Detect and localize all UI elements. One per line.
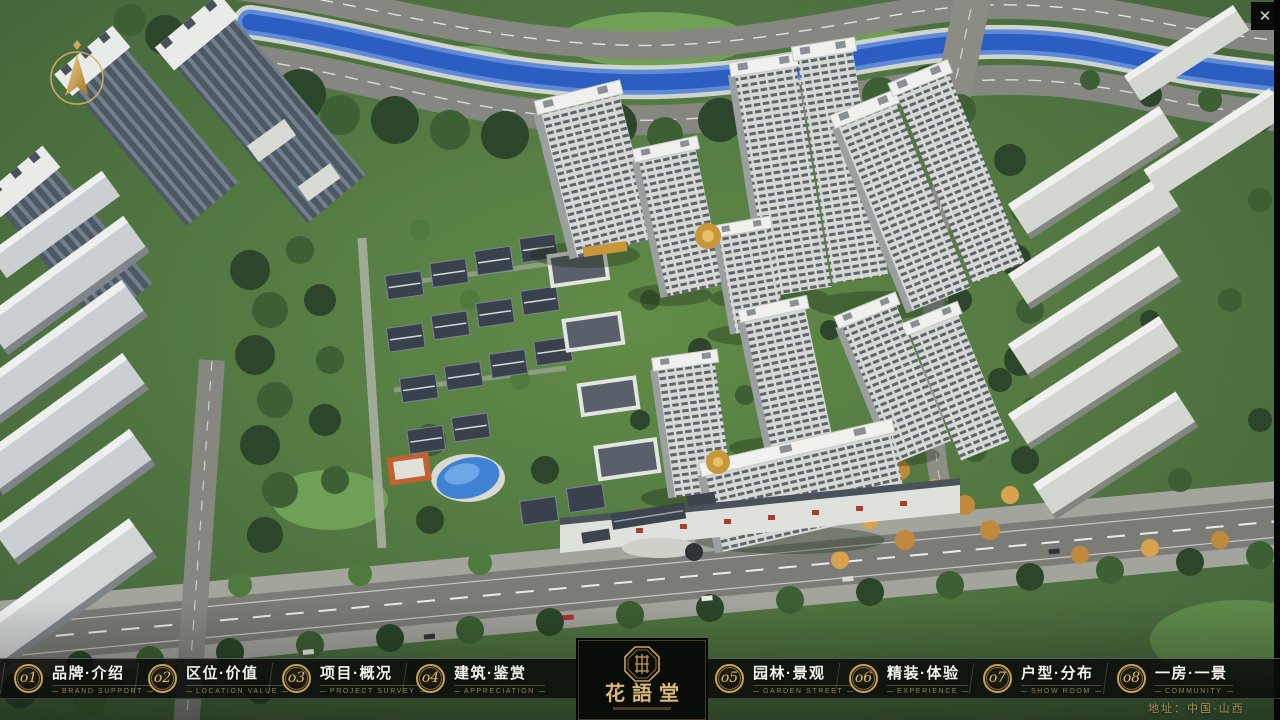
nav-label-en: COMMUNITY xyxy=(1155,685,1233,695)
nav-number-badge: o1 xyxy=(14,664,43,693)
project-name: 花語堂 xyxy=(598,683,686,703)
nav-item-brand-intro[interactable]: o1 品牌·介绍BRAND SUPPORT xyxy=(2,659,136,698)
nav-number-badge: o4 xyxy=(416,664,445,693)
nav-label-en: APPRECIATION xyxy=(454,685,545,695)
nav-label-zh: 区位·价值 xyxy=(186,662,259,683)
nav-group-right: o5 园林·景观GARDEN STREET o6 精装·体验EXPERIENCE… xyxy=(703,659,1239,698)
nav-item-room-view[interactable]: o8 一房·一景COMMUNITY xyxy=(1105,659,1239,698)
nav-group-left: o1 品牌·介绍BRAND SUPPORT o2 区位·价值LOCATION V… xyxy=(2,659,538,698)
project-tagline-line xyxy=(613,707,671,710)
nav-item-floorplan-distribution[interactable]: o7 户型·分布SHOW ROOM xyxy=(971,659,1105,698)
sales-presentation-window: ✕ o1 品牌·介绍BRAND SUPPORT o2 区位·价值LOCATION… xyxy=(0,0,1280,720)
nav-label-en: SHOW ROOM xyxy=(1021,685,1101,695)
nav-number-badge: o2 xyxy=(148,664,177,693)
nav-number-badge: o8 xyxy=(1117,664,1146,693)
project-logo-panel[interactable]: 花語堂 xyxy=(578,640,706,720)
address-text: 地址：中国·山西 xyxy=(1148,700,1245,716)
nav-item-location-value[interactable]: o2 区位·价值LOCATION VALUE xyxy=(136,659,270,698)
nav-label-zh: 户型·分布 xyxy=(1021,662,1094,683)
nav-label-zh: 品牌·介绍 xyxy=(52,662,125,683)
nav-label-zh: 一房·一景 xyxy=(1155,662,1228,683)
nav-label-zh: 建筑·鉴赏 xyxy=(454,662,527,683)
brand-seal-icon xyxy=(624,646,660,682)
nav-number-badge: o5 xyxy=(715,664,744,693)
nav-item-project-survey[interactable]: o3 项目·概况PROJECT SURVEY xyxy=(270,659,404,698)
nav-item-garden-landscape[interactable]: o5 园林·景观GARDEN STREET xyxy=(703,659,837,698)
nav-label-zh: 精装·体验 xyxy=(887,662,960,683)
nav-label-en: EXPERIENCE xyxy=(887,685,968,695)
right-edge-bar xyxy=(1274,0,1280,720)
site-map-render[interactable] xyxy=(0,0,1280,720)
nav-number-badge: o7 xyxy=(983,664,1012,693)
nav-label-zh: 项目·概况 xyxy=(320,662,393,683)
nav-item-architecture[interactable]: o4 建筑·鉴赏APPRECIATION xyxy=(404,659,538,698)
nav-label-zh: 园林·景观 xyxy=(753,662,826,683)
nav-item-interior-experience[interactable]: o6 精装·体验EXPERIENCE xyxy=(837,659,971,698)
nav-number-badge: o3 xyxy=(282,664,311,693)
nav-number-badge: o6 xyxy=(849,664,878,693)
